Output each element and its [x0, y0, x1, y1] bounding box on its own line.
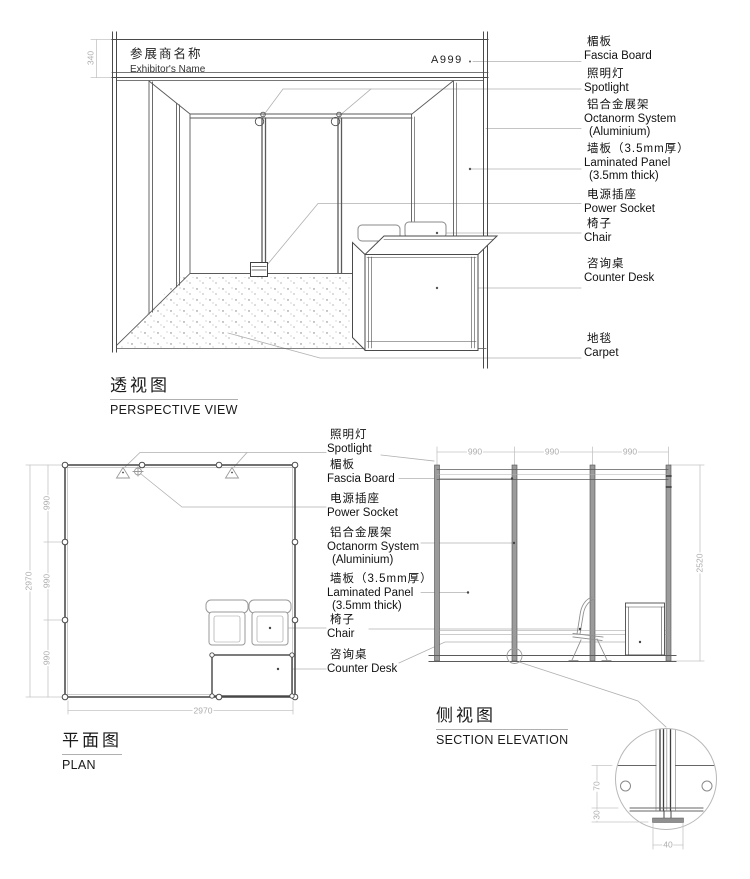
- section-counter-desk: [626, 603, 665, 655]
- title-en: SECTION ELEVATION: [436, 730, 568, 747]
- label-en: Fascia Board: [327, 473, 395, 487]
- label-zh: 电源插座: [330, 493, 398, 507]
- dim-detail-base-width: 40: [662, 841, 673, 850]
- detail-base-flange: [653, 818, 684, 823]
- persp-label-laminated-panel: 墙板（3.5mm厚） Laminated Panel (3.5mm thick): [584, 143, 690, 184]
- exhibitor-name-zh: 参展商名称: [130, 43, 205, 62]
- label-zh: 咨询桌: [330, 649, 397, 663]
- label-en: Spotlight: [327, 443, 372, 457]
- label-zh: 咨询桌: [587, 258, 654, 272]
- label-en: Carpet: [584, 347, 619, 361]
- dim-plan-bay-1: 990: [43, 495, 52, 511]
- plan-view-drawing: [26, 453, 326, 715]
- label-zh: 照明灯: [587, 68, 629, 82]
- label-zh: 照明灯: [330, 429, 372, 443]
- dim-sec-bay-2: 990: [544, 448, 560, 457]
- label-zh: 墙板（3.5mm厚）: [587, 143, 690, 157]
- label-en2: (Aluminium): [589, 126, 676, 140]
- booth-number: A999: [431, 54, 463, 66]
- label-en: Octanorm System: [584, 113, 676, 127]
- section-view-title: 侧视图 SECTION ELEVATION: [436, 701, 568, 747]
- label-en: Spotlight: [584, 82, 629, 96]
- persp-label-spotlight: 照明灯 Spotlight: [584, 68, 629, 95]
- title-zh: 透视图: [110, 371, 238, 400]
- label-en: Chair: [327, 628, 355, 642]
- plan-counter-desk: [212, 655, 292, 696]
- detail-bolt-hole-left: [621, 781, 631, 791]
- persp-label-chair: 椅子 Chair: [584, 218, 612, 245]
- label-en: Counter Desk: [584, 272, 654, 286]
- mid-label-spotlight: 照明灯 Spotlight: [327, 429, 372, 456]
- label-zh: 墙板（3.5mm厚）: [330, 573, 433, 587]
- dim-plan-bay-3: 990: [43, 650, 52, 666]
- label-en: Counter Desk: [327, 663, 397, 677]
- label-en: Chair: [584, 232, 612, 246]
- label-zh: 椅子: [330, 614, 355, 628]
- persp-label-power-socket: 电源插座 Power Socket: [584, 189, 655, 216]
- title-en: PLAN: [62, 755, 122, 772]
- label-zh: 楣板: [330, 459, 395, 473]
- mid-label-chair: 椅子 Chair: [327, 614, 355, 641]
- persp-label-counter-desk: 咨询桌 Counter Desk: [584, 258, 654, 285]
- dim-plan-bay-2: 990: [43, 573, 52, 589]
- label-en: Power Socket: [584, 203, 655, 217]
- label-en2: (3.5mm thick): [589, 170, 690, 184]
- mid-label-fascia-board: 楣板 Fascia Board: [327, 459, 395, 486]
- persp-label-carpet: 地毯 Carpet: [584, 333, 619, 360]
- title-zh: 侧视图: [436, 701, 568, 730]
- section-leader-dots: [467, 477, 641, 643]
- label-en: Laminated Panel: [584, 157, 690, 171]
- label-zh: 电源插座: [587, 189, 655, 203]
- counter-desk-3d: [353, 236, 498, 351]
- dim-sec-bay-1: 990: [467, 448, 483, 457]
- detail-drawing: [592, 729, 717, 850]
- dim-fascia-height: 340: [87, 50, 96, 66]
- power-socket-symbol: [251, 263, 268, 277]
- exhibitor-name-en: Exhibitor's Name: [130, 64, 205, 75]
- persp-label-fascia-board: 楣板 Fascia Board: [584, 36, 652, 63]
- label-en: Fascia Board: [584, 50, 652, 64]
- dim-sec-height: 2520: [696, 553, 705, 574]
- plan-chairs: [206, 600, 291, 645]
- dim-sec-bay-3: 990: [622, 448, 638, 457]
- mid-label-counter-desk: 咨询桌 Counter Desk: [327, 649, 397, 676]
- label-en: Octanorm System: [327, 541, 419, 555]
- label-zh: 铝合金展架: [587, 99, 676, 113]
- fascia-board-text: 参展商名称 Exhibitor's Name: [130, 43, 205, 75]
- title-zh: 平面图: [62, 726, 122, 755]
- dim-plan-total-bottom: 2970: [193, 707, 214, 716]
- label-en2: (3.5mm thick): [332, 600, 433, 614]
- dim-plan-total-left: 2970: [25, 571, 34, 592]
- mid-label-laminated-panel: 墙板（3.5mm厚） Laminated Panel (3.5mm thick): [327, 573, 433, 614]
- detail-post-profile: [656, 729, 676, 810]
- label-zh: 铝合金展架: [330, 527, 419, 541]
- label-zh: 地毯: [587, 333, 619, 347]
- title-en: PERSPECTIVE VIEW: [110, 400, 238, 417]
- mid-label-octanorm-system: 铝合金展架 Octanorm System (Aluminium): [327, 527, 419, 568]
- perspective-view-drawing: [91, 32, 581, 368]
- persp-label-octanorm-system: 铝合金展架 Octanorm System (Aluminium): [584, 99, 676, 140]
- dim-detail-upper: 70: [593, 780, 602, 791]
- perspective-view-title: 透视图 PERSPECTIVE VIEW: [110, 371, 238, 417]
- plan-view-title: 平面图 PLAN: [62, 726, 122, 772]
- mid-label-power-socket: 电源插座 Power Socket: [327, 493, 398, 520]
- detail-bolt-hole-right: [702, 781, 712, 791]
- drawing-sheet: { "doc": { "titles": { "perspective_zh":…: [0, 0, 750, 879]
- label-en2: (Aluminium): [332, 554, 419, 568]
- label-en: Laminated Panel: [327, 587, 433, 601]
- label-zh: 楣板: [587, 36, 652, 50]
- label-en: Power Socket: [327, 507, 398, 521]
- dim-detail-lower: 30: [593, 809, 602, 820]
- label-zh: 椅子: [587, 218, 612, 232]
- detail-dimension-lines: [592, 766, 683, 850]
